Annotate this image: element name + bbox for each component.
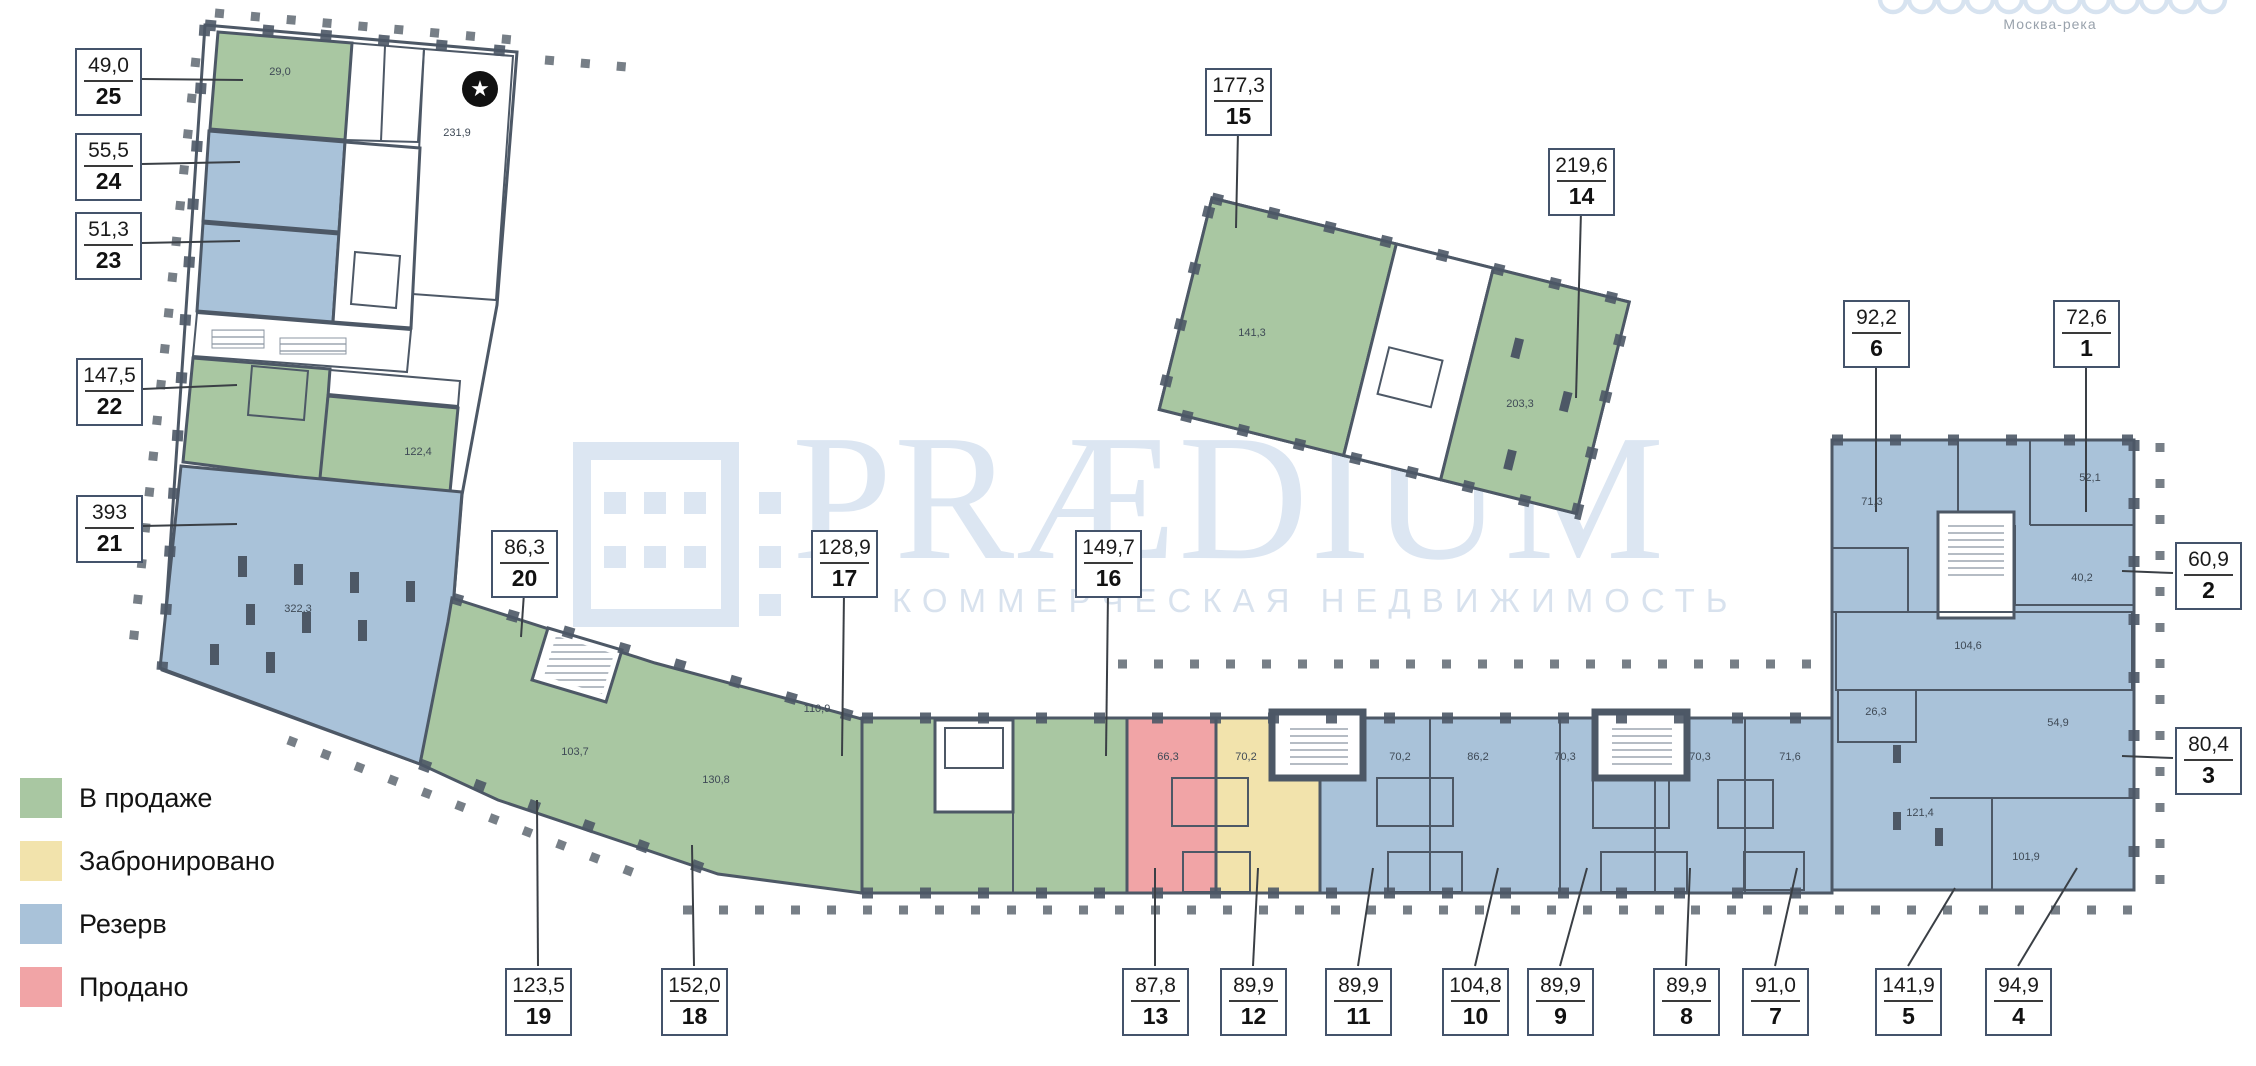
unit-area: 141,9 [1877, 974, 1940, 997]
unit-number: 14 [1557, 180, 1606, 209]
unit-area: 51,3 [77, 218, 140, 241]
legend-label: Продано [79, 972, 189, 1003]
legend-swatch-reserve [20, 904, 62, 944]
leader-line-24 [142, 162, 240, 164]
unit-area: 149,7 [1077, 536, 1140, 559]
unit-label-24[interactable]: 55,524 [75, 133, 142, 201]
unit-number: 11 [1334, 1000, 1383, 1029]
leader-line-17 [842, 593, 844, 756]
legend-label: Резерв [79, 909, 167, 940]
unit-area: 393 [78, 501, 141, 524]
leader-line-15 [1236, 131, 1238, 228]
unit-label-22[interactable]: 147,522 [76, 358, 143, 426]
unit-number: 20 [500, 562, 549, 591]
unit-area: 92,2 [1845, 306, 1908, 329]
unit-label-15[interactable]: 177,315 [1205, 68, 1272, 136]
unit-number: 10 [1451, 1000, 1500, 1029]
legend-item-sold: Продано [20, 967, 275, 1007]
leader-line-8 [1686, 868, 1690, 966]
unit-number: 15 [1214, 100, 1263, 129]
unit-label-17[interactable]: 128,917 [811, 530, 878, 598]
leader-line-21 [143, 524, 237, 526]
legend-item-sale: В продаже [20, 778, 275, 818]
leader-line-25 [142, 79, 243, 80]
unit-number: 19 [514, 1000, 563, 1029]
unit-label-20[interactable]: 86,320 [491, 530, 558, 598]
legend-swatch-sold [20, 967, 62, 1007]
unit-number: 17 [820, 562, 869, 591]
unit-number: 18 [670, 1000, 719, 1029]
legend-label: Забронировано [79, 846, 275, 877]
unit-area: 177,3 [1207, 74, 1270, 97]
leader-line-20 [521, 593, 524, 637]
unit-label-4[interactable]: 94,94 [1985, 968, 2052, 1036]
unit-label-12[interactable]: 89,912 [1220, 968, 1287, 1036]
leader-line-4 [2018, 868, 2077, 966]
unit-area: 128,9 [813, 536, 876, 559]
unit-label-25[interactable]: 49,025 [75, 48, 142, 116]
leader-line-5 [1908, 888, 1955, 966]
unit-label-1[interactable]: 72,61 [2053, 300, 2120, 368]
legend-swatch-sale [20, 778, 62, 818]
leader-line-7 [1775, 868, 1797, 966]
unit-number: 21 [85, 527, 134, 556]
leader-line-19 [537, 800, 538, 966]
unit-area: 86,3 [493, 536, 556, 559]
unit-number: 1 [2062, 332, 2111, 361]
unit-label-19[interactable]: 123,519 [505, 968, 572, 1036]
unit-area: 49,0 [77, 54, 140, 77]
unit-label-11[interactable]: 89,911 [1325, 968, 1392, 1036]
unit-label-8[interactable]: 89,98 [1653, 968, 1720, 1036]
unit-number: 5 [1884, 1000, 1933, 1029]
unit-label-14[interactable]: 219,614 [1548, 148, 1615, 216]
unit-number: 7 [1751, 1000, 1800, 1029]
leader-line-12 [1253, 868, 1258, 966]
unit-number: 6 [1852, 332, 1901, 361]
unit-number: 4 [1994, 1000, 2043, 1029]
unit-area: 72,6 [2055, 306, 2118, 329]
legend-item-reserve: Резерв [20, 904, 275, 944]
unit-label-5[interactable]: 141,95 [1875, 968, 1942, 1036]
unit-area: 91,0 [1744, 974, 1807, 997]
unit-number: 24 [84, 165, 133, 194]
unit-area: 89,9 [1222, 974, 1285, 997]
unit-area: 55,5 [77, 139, 140, 162]
leader-line-3 [2122, 756, 2173, 758]
legend-item-booked: Забронировано [20, 841, 275, 881]
unit-label-16[interactable]: 149,716 [1075, 530, 1142, 598]
unit-label-3[interactable]: 80,43 [2175, 727, 2242, 795]
unit-area: 89,9 [1327, 974, 1390, 997]
unit-label-2[interactable]: 60,92 [2175, 542, 2242, 610]
unit-area: 219,6 [1550, 154, 1613, 177]
unit-area: 104,8 [1444, 974, 1507, 997]
unit-area: 123,5 [507, 974, 570, 997]
unit-area: 89,9 [1655, 974, 1718, 997]
unit-label-9[interactable]: 89,99 [1527, 968, 1594, 1036]
unit-area: 80,4 [2177, 733, 2240, 756]
unit-area: 147,5 [78, 364, 141, 387]
floorplan-page: PRÆDIUM КОММЕРЧЕСКАЯ НЕДВИЖИМОСТЬ Москва… [0, 0, 2256, 1066]
unit-number: 16 [1084, 562, 1133, 591]
unit-area: 89,9 [1529, 974, 1592, 997]
legend: В продажеЗабронированоРезервПродано [20, 778, 275, 1030]
leader-line-14 [1576, 211, 1581, 398]
unit-number: 23 [84, 244, 133, 273]
unit-area: 87,8 [1124, 974, 1187, 997]
unit-number: 13 [1131, 1000, 1180, 1029]
unit-label-23[interactable]: 51,323 [75, 212, 142, 280]
unit-number: 2 [2184, 574, 2233, 603]
unit-number: 12 [1229, 1000, 1278, 1029]
leader-line-22 [143, 385, 237, 389]
unit-area: 94,9 [1987, 974, 2050, 997]
legend-label: В продаже [79, 783, 212, 814]
unit-number: 3 [2184, 759, 2233, 788]
leader-line-2 [2122, 571, 2173, 573]
unit-area: 60,9 [2177, 548, 2240, 571]
unit-label-13[interactable]: 87,813 [1122, 968, 1189, 1036]
leader-line-23 [142, 241, 240, 243]
unit-number: 8 [1662, 1000, 1711, 1029]
unit-number: 9 [1536, 1000, 1585, 1029]
unit-label-6[interactable]: 92,26 [1843, 300, 1910, 368]
leader-line-16 [1106, 593, 1108, 756]
unit-area: 152,0 [663, 974, 726, 997]
leader-line-18 [692, 845, 694, 966]
unit-number: 25 [84, 80, 133, 109]
leader-line-10 [1475, 868, 1498, 966]
unit-label-18[interactable]: 152,018 [661, 968, 728, 1036]
unit-label-21[interactable]: 39321 [76, 495, 143, 563]
legend-swatch-booked [20, 841, 62, 881]
leader-line-9 [1560, 868, 1587, 966]
leader-line-11 [1358, 868, 1373, 966]
unit-number: 22 [85, 390, 134, 419]
unit-label-7[interactable]: 91,07 [1742, 968, 1809, 1036]
unit-label-10[interactable]: 104,810 [1442, 968, 1509, 1036]
